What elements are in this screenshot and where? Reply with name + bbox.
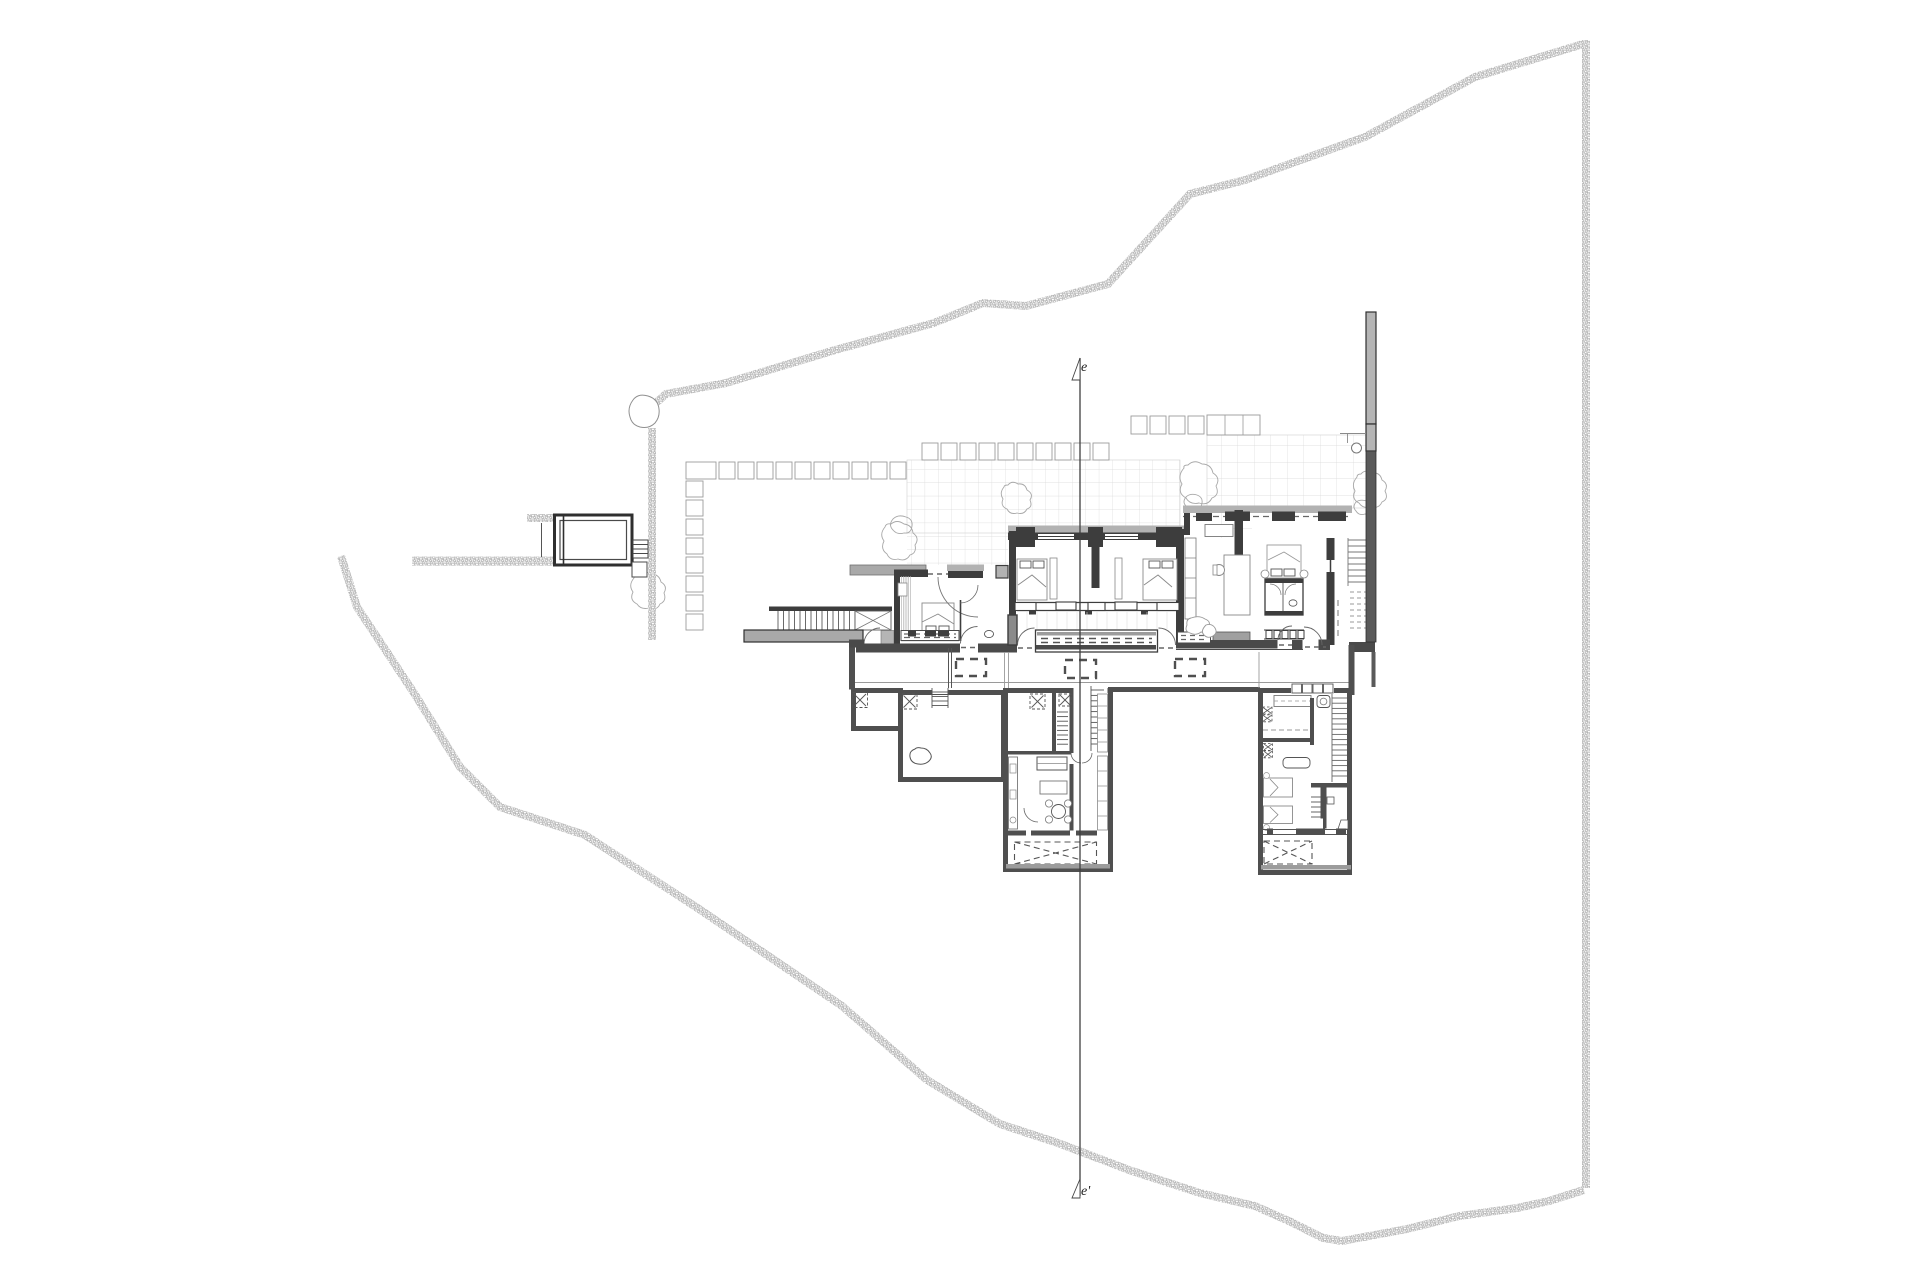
- svg-text:e': e': [1081, 1184, 1091, 1199]
- svg-text:e: e: [1081, 360, 1087, 375]
